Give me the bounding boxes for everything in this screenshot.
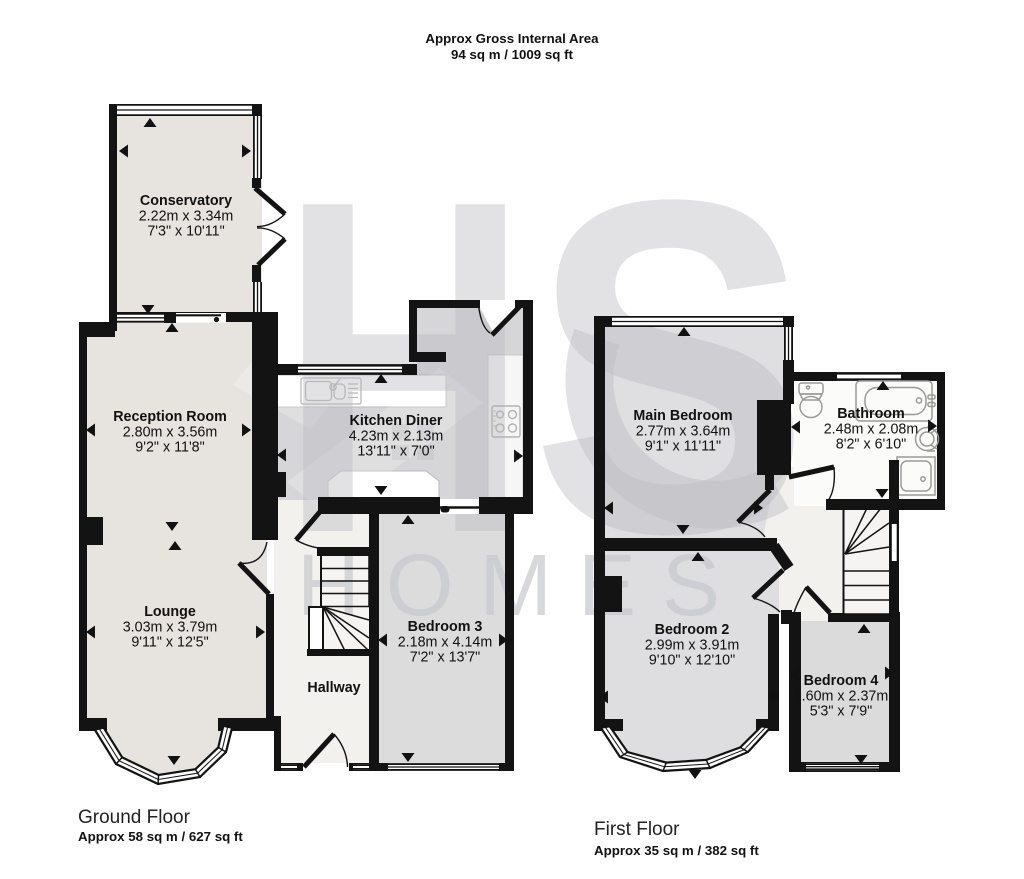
svg-text:13'11" x 7'0": 13'11" x 7'0"	[357, 444, 434, 460]
svg-text:Approx Gross Internal Area: Approx Gross Internal Area	[425, 31, 599, 46]
svg-text:9'1" x 11'11": 9'1" x 11'11"	[645, 439, 721, 455]
svg-text:Bathroom: Bathroom	[837, 406, 905, 422]
svg-text:8'2" x 6'10": 8'2" x 6'10"	[836, 437, 906, 453]
svg-text:2.48m x 2.08m: 2.48m x 2.08m	[824, 421, 919, 437]
svg-text:9'2" x 11'8": 9'2" x 11'8"	[135, 440, 204, 456]
svg-text:Bedroom 3: Bedroom 3	[408, 619, 483, 635]
svg-text:4.23m x 2.13m: 4.23m x 2.13m	[349, 428, 444, 444]
svg-text:Reception Room: Reception Room	[113, 409, 227, 425]
svg-text:1.60m x 2.37m: 1.60m x 2.37m	[794, 688, 889, 704]
svg-text:2.80m x 3.56m: 2.80m x 3.56m	[123, 424, 218, 440]
svg-text:2.22m x 3.34m: 2.22m x 3.34m	[139, 208, 234, 224]
svg-text:First Floor: First Floor	[594, 819, 680, 840]
svg-text:3.03m x 3.79m: 3.03m x 3.79m	[123, 619, 218, 635]
svg-text:Conservatory: Conservatory	[140, 193, 232, 209]
svg-text:2.77m x 3.64m: 2.77m x 3.64m	[636, 423, 731, 439]
svg-text:Ground Floor: Ground Floor	[78, 807, 191, 828]
svg-text:7'3" x 10'11": 7'3" x 10'11"	[147, 224, 224, 240]
svg-text:9'10" x 12'10": 9'10" x 12'10"	[649, 653, 735, 669]
svg-text:7'2" x 13'7": 7'2" x 13'7"	[410, 650, 480, 666]
svg-text:Bedroom 4: Bedroom 4	[804, 673, 879, 689]
svg-text:94 sq m / 1009 sq ft: 94 sq m / 1009 sq ft	[451, 47, 574, 62]
svg-text:Approx 35 sq m / 382 sq ft: Approx 35 sq m / 382 sq ft	[594, 843, 759, 858]
svg-text:Main Bedroom: Main Bedroom	[633, 408, 732, 424]
svg-text:Lounge: Lounge	[144, 604, 196, 620]
svg-text:2.99m x 3.91m: 2.99m x 3.91m	[645, 637, 740, 653]
svg-text:5'3" x 7'9": 5'3" x 7'9"	[810, 704, 873, 720]
svg-text:Kitchen Diner: Kitchen Diner	[350, 413, 443, 429]
svg-text:9'11" x 12'5": 9'11" x 12'5"	[131, 635, 208, 651]
svg-text:Bedroom 2: Bedroom 2	[655, 622, 730, 638]
svg-text:2.18m x 4.14m: 2.18m x 4.14m	[398, 634, 493, 650]
svg-text:Approx 58 sq m / 627 sq ft: Approx 58 sq m / 627 sq ft	[78, 829, 243, 844]
svg-text:Hallway: Hallway	[307, 680, 360, 696]
